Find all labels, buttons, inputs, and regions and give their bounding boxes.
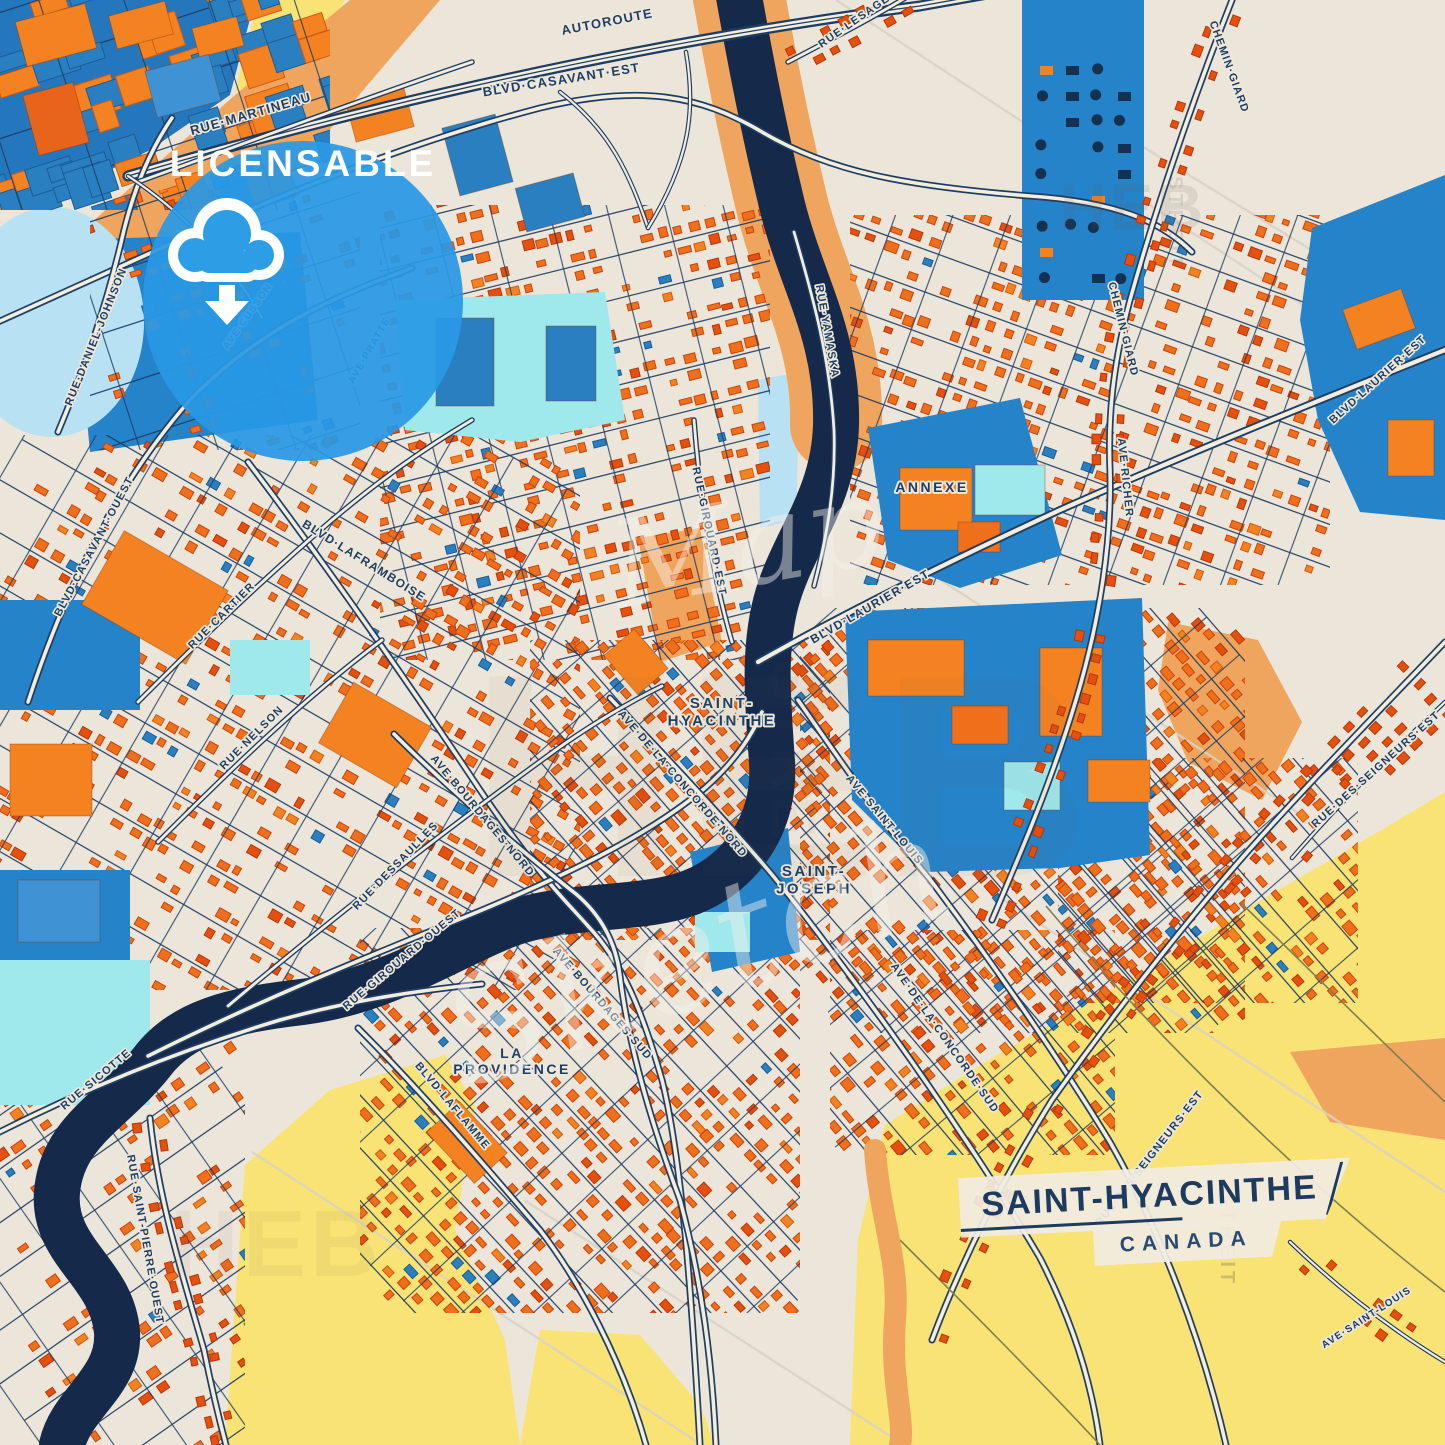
place-label: SAINT-JOSEPH <box>776 863 852 897</box>
street-label: AUTOROUTE <box>560 5 654 37</box>
place-label: ANNEXE <box>895 479 968 495</box>
cloud-download-icon <box>143 179 303 327</box>
street-label: RUE·NELSON <box>218 704 286 772</box>
street-label: RUE·DESSAULLES <box>351 819 441 912</box>
place-label: LAPROVIDENCE <box>453 1045 571 1077</box>
map-poster: RUE·MARTINEAUAUTOROUTEBLVD·CASAVANT·ESTR… <box>0 0 1445 1445</box>
title-slash-accent <box>1326 1162 1343 1215</box>
licensable-badge: LICENSABLE <box>143 141 463 461</box>
street-label: CHEMIN·GIARD <box>1207 19 1251 114</box>
